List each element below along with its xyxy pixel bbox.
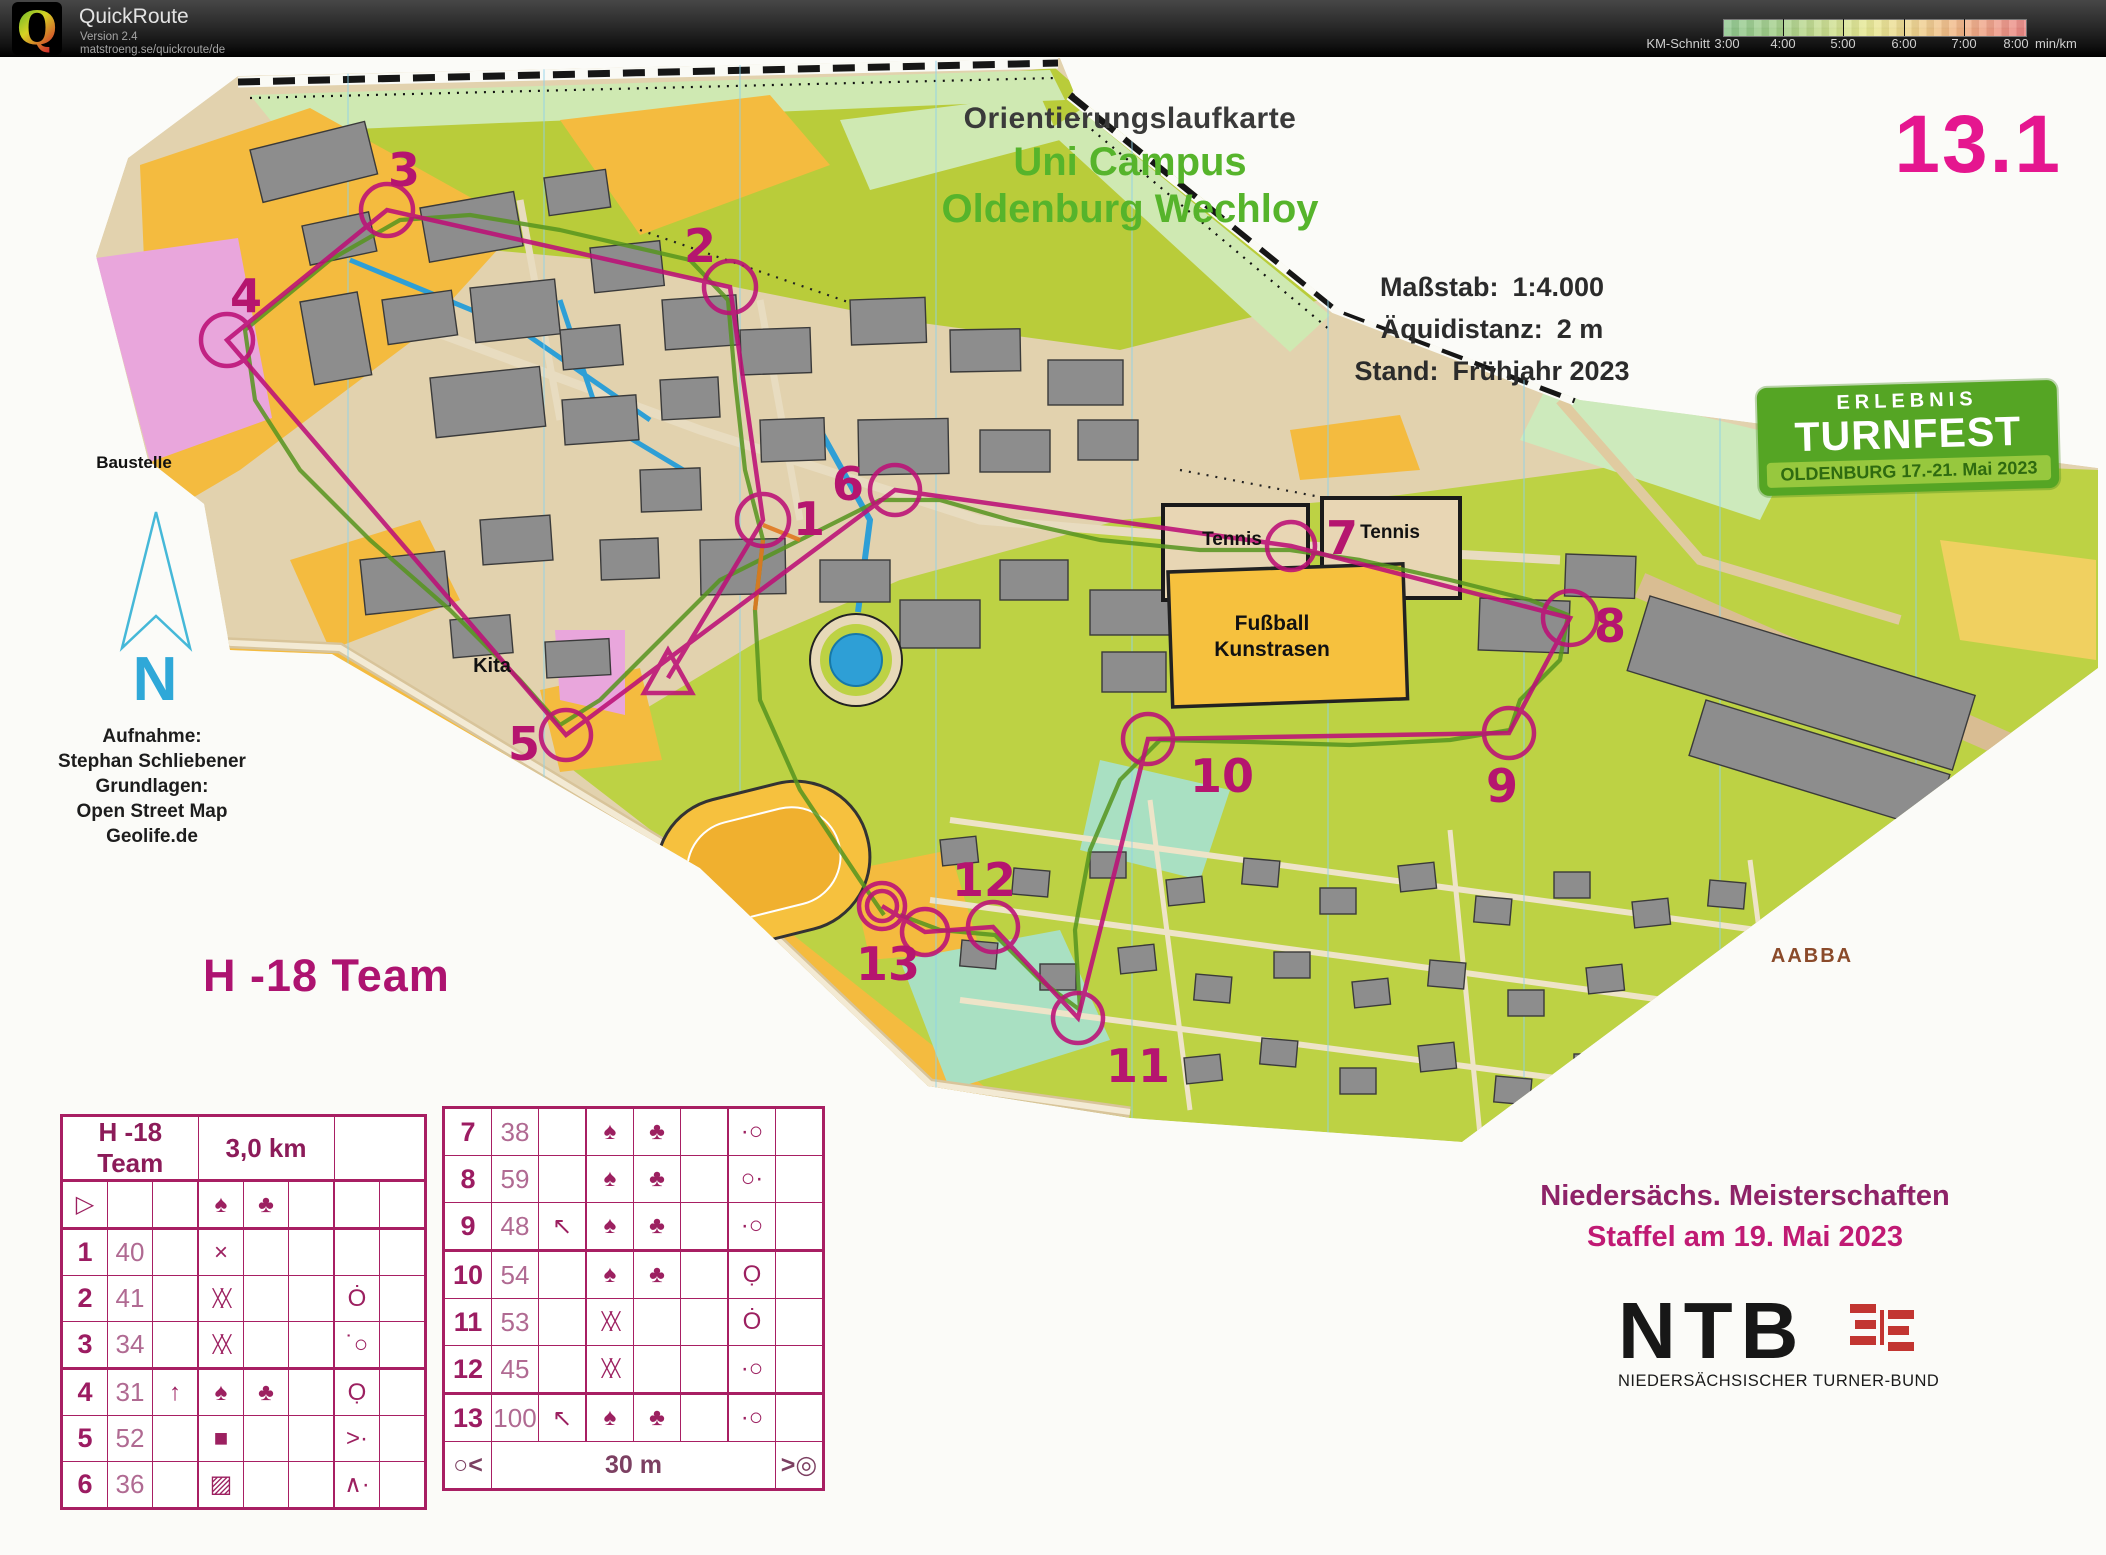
taped-route-finish-icon: >◎: [776, 1442, 824, 1490]
app-url[interactable]: matstroeng.se/quickroute/de: [80, 44, 225, 56]
code-cell: 59: [492, 1156, 539, 1203]
course-name-cell: H -18 Team: [62, 1116, 199, 1181]
turnfest-line2: TURNFEST: [1757, 409, 2058, 459]
symbol-cell: ▨: [198, 1462, 244, 1509]
edition-value: Frühjahr 2023: [1452, 356, 1629, 386]
svg-text:Geolife.de: Geolife.de: [106, 826, 198, 847]
code-cell: 100: [492, 1394, 539, 1442]
symbol-cell: [539, 1108, 587, 1156]
symbol-cell: [334, 1229, 380, 1276]
map-sheet-number: 13.1: [1894, 98, 2062, 192]
control-number-label: 6: [832, 457, 864, 511]
symbol-cell: Ọ: [728, 1251, 776, 1299]
map-title-block: Orientierungslaufkarte Uni Campus Oldenb…: [941, 102, 1318, 232]
symbol-cell: [681, 1251, 729, 1299]
symbol-cell: [244, 1416, 289, 1462]
map-title-kind: Orientierungslaufkarte: [941, 102, 1318, 136]
symbol-cell: [244, 1462, 289, 1509]
edition-label: Stand:: [1354, 356, 1438, 386]
code-cell: 41: [108, 1276, 153, 1322]
control-number-label: 2: [684, 219, 716, 273]
symbol-cell: [289, 1276, 335, 1322]
symbol-cell: [681, 1299, 729, 1346]
control-number-cell: 3: [62, 1322, 108, 1369]
symbol-cell: ♣: [634, 1108, 681, 1156]
taped-route-distance: 30 m: [492, 1442, 776, 1490]
control-number-label: 9: [1486, 759, 1518, 813]
symbol-cell: [380, 1229, 426, 1276]
app-header: Q QuickRoute Version 2.4 matstroeng.se/q…: [0, 0, 2106, 57]
symbol-cell: [289, 1369, 335, 1416]
symbol-cell: [289, 1229, 335, 1276]
symbol-cell: ♠: [586, 1108, 634, 1156]
control-number-cell: 12: [444, 1346, 492, 1394]
symbol-cell: [539, 1156, 587, 1203]
symbol-cell: [289, 1181, 335, 1229]
symbol-cell: [634, 1346, 681, 1394]
symbol-cell: ♠: [586, 1251, 634, 1299]
course-length-cell: 3,0 km: [198, 1116, 334, 1181]
code-cell: 54: [492, 1251, 539, 1299]
control-number-label: 7: [1326, 511, 1358, 565]
map-credits: Aufnahme: Stephan Schliebener Grundlagen…: [58, 726, 247, 847]
code-cell: [108, 1181, 153, 1229]
symbol-cell: ╳╳: [198, 1322, 244, 1369]
tennis-label: Tennis: [1360, 522, 1420, 543]
control-number-label: 13: [856, 937, 920, 991]
control-number-label: 10: [1190, 749, 1254, 803]
symbol-cell: ○·: [728, 1156, 776, 1203]
symbol-cell: ·○: [728, 1108, 776, 1156]
symbol-cell: [153, 1276, 199, 1322]
control-number-cell: 6: [62, 1462, 108, 1509]
control-number-cell: 9: [444, 1203, 492, 1251]
code-cell: 45: [492, 1346, 539, 1394]
championship-line1: Niedersächs. Meisterschaften: [1540, 1180, 1949, 1213]
legend-tick-label: 7:00: [1951, 36, 1976, 51]
symbol-cell: [681, 1346, 729, 1394]
control-number-label: 8: [1594, 599, 1626, 653]
symbol-cell: [776, 1156, 824, 1203]
map-scale-block: Maßstab:1:4.000 Äquidistanz:2 m Stand:Fr…: [1354, 266, 1629, 392]
app-version: Version 2.4: [80, 31, 138, 43]
symbol-cell: ↖: [539, 1394, 587, 1442]
scale-value: 1:4.000: [1512, 272, 1604, 302]
symbol-cell: ♣: [244, 1181, 289, 1229]
symbol-cell: [244, 1276, 289, 1322]
svg-text:Stephan Schliebener: Stephan Schliebener: [58, 751, 247, 772]
symbol-cell: [681, 1203, 729, 1251]
ntb-logo-block: NTB NIEDERSÄCHSISCHER TURNER-BUND: [1618, 1292, 1939, 1391]
symbol-cell: [153, 1181, 199, 1229]
quickroute-logo: Q: [12, 2, 62, 55]
symbol-cell: [153, 1229, 199, 1276]
legend-tick-label: 8:00: [2003, 36, 2028, 51]
app-title: QuickRoute: [79, 5, 189, 29]
symbol-cell: ♠: [586, 1203, 634, 1251]
symbol-cell: ↖: [539, 1203, 587, 1251]
control-number-cell: 5: [62, 1416, 108, 1462]
symbol-cell: ♣: [634, 1156, 681, 1203]
legend-tick: [1964, 19, 1965, 36]
symbol-cell: Ọ: [334, 1369, 380, 1416]
championship-block: Niedersächs. Meisterschaften Staffel am …: [1540, 1180, 1949, 1254]
symbol-cell: [776, 1299, 824, 1346]
start-symbol-cell: ▷: [62, 1181, 108, 1229]
tennis-label: Tennis: [1202, 529, 1262, 550]
legend-tick-label: 6:00: [1891, 36, 1916, 51]
control-number-label: 3: [388, 143, 420, 197]
symbol-cell: ∧·: [334, 1462, 380, 1509]
symbol-cell: ♠: [586, 1394, 634, 1442]
symbol-cell: [380, 1369, 426, 1416]
symbol-cell: ♣: [634, 1251, 681, 1299]
control-number-cell: 10: [444, 1251, 492, 1299]
control-number-label: 11: [1106, 1039, 1170, 1093]
legend-tick-label: 3:00: [1714, 36, 1739, 51]
symbol-cell: [380, 1416, 426, 1462]
svg-text:Grundlagen:: Grundlagen:: [96, 776, 209, 797]
symbol-cell: [776, 1346, 824, 1394]
symbol-cell: [153, 1462, 199, 1509]
symbol-cell: [539, 1346, 587, 1394]
baustelle-label: Baustelle: [96, 453, 172, 472]
course-name-label: H -18 Team: [203, 950, 450, 1002]
symbol-cell: [380, 1462, 426, 1509]
symbol-cell: ×: [198, 1229, 244, 1276]
symbol-cell: [289, 1416, 335, 1462]
map-title-name1: Uni Campus: [941, 140, 1318, 185]
q-letter-icon: Q: [17, 2, 57, 55]
symbol-cell: [776, 1108, 824, 1156]
code-cell: 40: [108, 1229, 153, 1276]
control-number-cell: 13: [444, 1394, 492, 1442]
north-arrow-icon: [122, 512, 190, 648]
equidistance-label: Äquidistanz:: [1381, 314, 1543, 344]
turnfest-sticker: ERLEBNIS TURNFEST OLDENBURG 17.-21. Mai …: [1757, 380, 2060, 496]
code-cell: 38: [492, 1108, 539, 1156]
symbol-cell: [539, 1299, 587, 1346]
symbol-cell: [380, 1322, 426, 1369]
svg-text:Open Street Map: Open Street Map: [77, 801, 228, 822]
symbol-cell: [776, 1394, 824, 1442]
symbol-cell: [681, 1394, 729, 1442]
code-cell: 52: [108, 1416, 153, 1462]
ntb-emblem-icon: [1850, 1298, 1914, 1360]
fussball-label-line1: Fußball: [1235, 612, 1310, 635]
course-climb-cell: [334, 1116, 426, 1181]
symbol-cell: [153, 1416, 199, 1462]
control-number-cell: 11: [444, 1299, 492, 1346]
symbol-cell: Ȯ: [334, 1276, 380, 1322]
code-cell: 34: [108, 1322, 153, 1369]
symbol-cell: ■: [198, 1416, 244, 1462]
symbol-cell: ♠: [586, 1156, 634, 1203]
taped-route-start-icon: ○<: [444, 1442, 492, 1490]
kita-label: Kita: [473, 655, 512, 677]
control-descriptions-left: H -18 Team 3,0 km ▷ ♠ ♣ 1 40 × 2 41 ╳╳ Ȯ…: [60, 1114, 427, 1510]
symbol-cell: [289, 1322, 335, 1369]
pace-gradient-bar[interactable]: [1723, 19, 2027, 37]
control-number-label: 4: [230, 269, 262, 323]
symbol-cell: ♣: [634, 1203, 681, 1251]
symbol-cell: [380, 1181, 426, 1229]
aabba-label: AABBA: [1771, 945, 1853, 967]
code-cell: 48: [492, 1203, 539, 1251]
svg-text:Aufnahme:: Aufnahme:: [102, 726, 201, 747]
fussball-label-line2: Kunstrasen: [1214, 638, 1330, 661]
symbol-cell: [153, 1322, 199, 1369]
symbol-cell: [380, 1276, 426, 1322]
control-number-cell: 1: [62, 1229, 108, 1276]
legend-unit: min/km: [2035, 36, 2077, 51]
symbol-cell: [334, 1181, 380, 1229]
symbol-cell: [681, 1108, 729, 1156]
symbol-cell: [634, 1299, 681, 1346]
control-number-label: 1: [793, 492, 825, 546]
symbol-cell: [539, 1251, 587, 1299]
map-title-name2: Oldenburg Wechloy: [941, 187, 1318, 232]
control-number-cell: 8: [444, 1156, 492, 1203]
scale-label: Maßstab:: [1380, 272, 1499, 302]
symbol-cell: Ȯ: [728, 1299, 776, 1346]
symbol-cell: [289, 1462, 335, 1509]
symbol-cell: ♣: [244, 1369, 289, 1416]
legend-tick: [1783, 19, 1784, 36]
code-cell: 53: [492, 1299, 539, 1346]
code-cell: 31: [108, 1369, 153, 1416]
symbol-cell: ♣: [634, 1394, 681, 1442]
legend-tick: [1904, 19, 1905, 36]
symbol-cell: [244, 1229, 289, 1276]
symbol-cell: ·○: [728, 1346, 776, 1394]
code-cell: 36: [108, 1462, 153, 1509]
equidistance-value: 2 m: [1557, 314, 1604, 344]
pace-legend-prefix: KM-Schnitt: [1646, 36, 1710, 51]
control-number-label: 5: [508, 717, 540, 771]
symbol-cell: ╳╳: [586, 1299, 634, 1346]
symbol-cell: [776, 1251, 824, 1299]
symbol-cell: ♠: [198, 1181, 244, 1229]
symbol-cell: ·○: [728, 1203, 776, 1251]
north-label: N: [133, 645, 178, 714]
symbol-cell: [244, 1322, 289, 1369]
symbol-cell: ↑: [153, 1369, 199, 1416]
symbol-cell: ·○: [728, 1394, 776, 1442]
ntb-full-name: NIEDERSÄCHSISCHER TURNER-BUND: [1618, 1372, 1939, 1391]
symbol-cell: >·: [334, 1416, 380, 1462]
control-descriptions-right: 7 38 ♠ ♣ ·○ 8 59 ♠ ♣ ○· 9 48 ↖ ♠ ♣ ·○ 10…: [442, 1106, 825, 1491]
turnfest-line3: OLDENBURG 17.-21. Mai 2023: [1767, 455, 2052, 488]
symbol-cell: ╳╳: [198, 1276, 244, 1322]
symbol-cell: ˙○: [334, 1322, 380, 1369]
legend-tick-label: 5:00: [1830, 36, 1855, 51]
control-number-cell: 7: [444, 1108, 492, 1156]
championship-line2: Staffel am 19. Mai 2023: [1540, 1221, 1949, 1254]
legend-tick-label: 4:00: [1770, 36, 1795, 51]
control-number-cell: 2: [62, 1276, 108, 1322]
control-number-cell: 4: [62, 1369, 108, 1416]
symbol-cell: ♠: [198, 1369, 244, 1416]
legend-tick: [1843, 19, 1844, 36]
control-number-label: 12: [952, 853, 1016, 907]
symbol-cell: [681, 1156, 729, 1203]
symbol-cell: ╳╳: [586, 1346, 634, 1394]
symbol-cell: [776, 1203, 824, 1251]
